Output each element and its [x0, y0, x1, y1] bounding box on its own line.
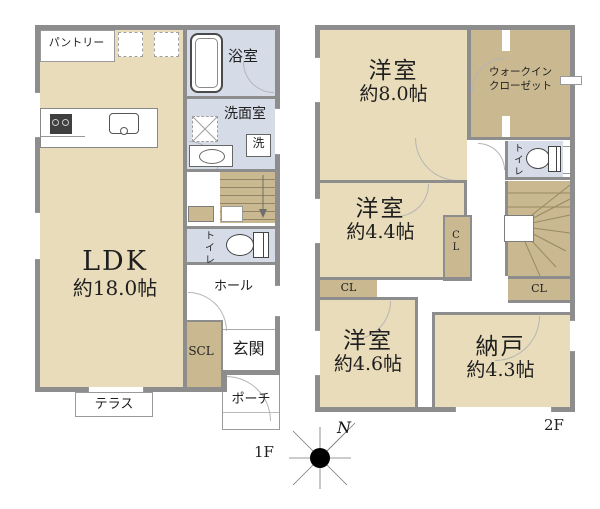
bedroom-46-label: 洋室 約4.6帖: [318, 328, 418, 376]
north-label: N: [336, 418, 352, 437]
window: [455, 407, 552, 412]
wall: [35, 25, 40, 392]
stairs-landing: [504, 215, 534, 242]
wall: [187, 169, 275, 172]
wall: [508, 276, 570, 279]
wall: [432, 312, 570, 315]
window: [275, 285, 280, 317]
washing-machine-label: 洗: [246, 137, 271, 151]
storage-label: 納戸 約4.3帖: [438, 334, 563, 382]
kitchen-sink-icon: [109, 113, 139, 134]
closet-pole-slot: [502, 116, 510, 137]
hall-label: ホール: [214, 280, 253, 295]
wall: [464, 183, 467, 215]
bathtub-icon: [190, 33, 223, 93]
wall: [275, 25, 280, 375]
wic-label: ウォークイン クローゼット: [473, 66, 568, 93]
compass: N: [283, 411, 367, 495]
entrance-label: 玄関: [222, 340, 275, 358]
bath-label: 浴室: [228, 48, 258, 65]
floor1-label: 1F: [254, 444, 274, 461]
terrace-door-window: [88, 387, 144, 392]
wall: [315, 25, 575, 30]
entrance-step-line: [222, 329, 275, 330]
porch-label: ポーチ: [222, 393, 280, 408]
ldk-room: [40, 30, 183, 387]
toilet-label-1f: トイレ: [202, 230, 214, 266]
compass-center-icon: [310, 448, 330, 468]
wall: [467, 30, 471, 140]
storage-slot-icon: [118, 32, 143, 57]
pantry-label: パントリー: [40, 37, 113, 50]
wall: [183, 30, 187, 387]
wall: [432, 312, 435, 407]
wall: [508, 300, 570, 303]
stove-icon: [50, 114, 72, 134]
toilet-label-2f: トイレ: [511, 143, 522, 178]
bedroom-8-label: 洋室 約8.0帖: [325, 58, 462, 106]
wall: [505, 141, 508, 177]
door-arc: [478, 143, 505, 170]
toilet-bowl-icon: [526, 148, 550, 169]
closet-pole-slot: [502, 30, 510, 51]
wall: [222, 370, 227, 392]
stairs-down-arrow-icon: [258, 175, 268, 219]
stairs-landing: [221, 206, 243, 222]
toilet-tank-icon: [253, 232, 269, 258]
wall: [471, 137, 570, 140]
window: [35, 92, 40, 138]
window: [275, 108, 280, 155]
window: [35, 212, 40, 260]
vanity-sink-icon: [189, 145, 233, 167]
washer-pan-icon: [192, 116, 218, 142]
ldk-label: LDK 約18.0帖: [45, 246, 185, 300]
floor2-label: 2F: [544, 417, 564, 434]
wall: [187, 226, 275, 229]
storage-slot-icon: [154, 32, 179, 57]
wall: [222, 370, 280, 375]
wall: [320, 297, 418, 300]
wall: [320, 277, 470, 280]
window: [563, 146, 570, 174]
toilet-tank-icon: [548, 146, 561, 172]
wall: [320, 180, 467, 183]
closet-left-label: CL: [320, 282, 377, 295]
window: [315, 57, 320, 103]
floor-plan-image: 洗: [0, 0, 600, 509]
kitchen-counter: [40, 108, 158, 148]
toilet-bowl-icon: [226, 234, 254, 256]
scl-label: SCL: [183, 345, 219, 359]
closet-right-label: CL: [508, 283, 570, 296]
washroom-label: 洗面室: [224, 106, 266, 122]
wall: [35, 25, 280, 30]
wall: [187, 96, 275, 99]
closet-mid-label: CL: [450, 230, 462, 254]
window: [570, 320, 575, 352]
understairs-closet: [188, 206, 214, 222]
terrace-label: テラス: [75, 398, 153, 413]
bedroom-44-label: 洋室 約4.4帖: [318, 196, 443, 244]
wall: [187, 262, 275, 265]
